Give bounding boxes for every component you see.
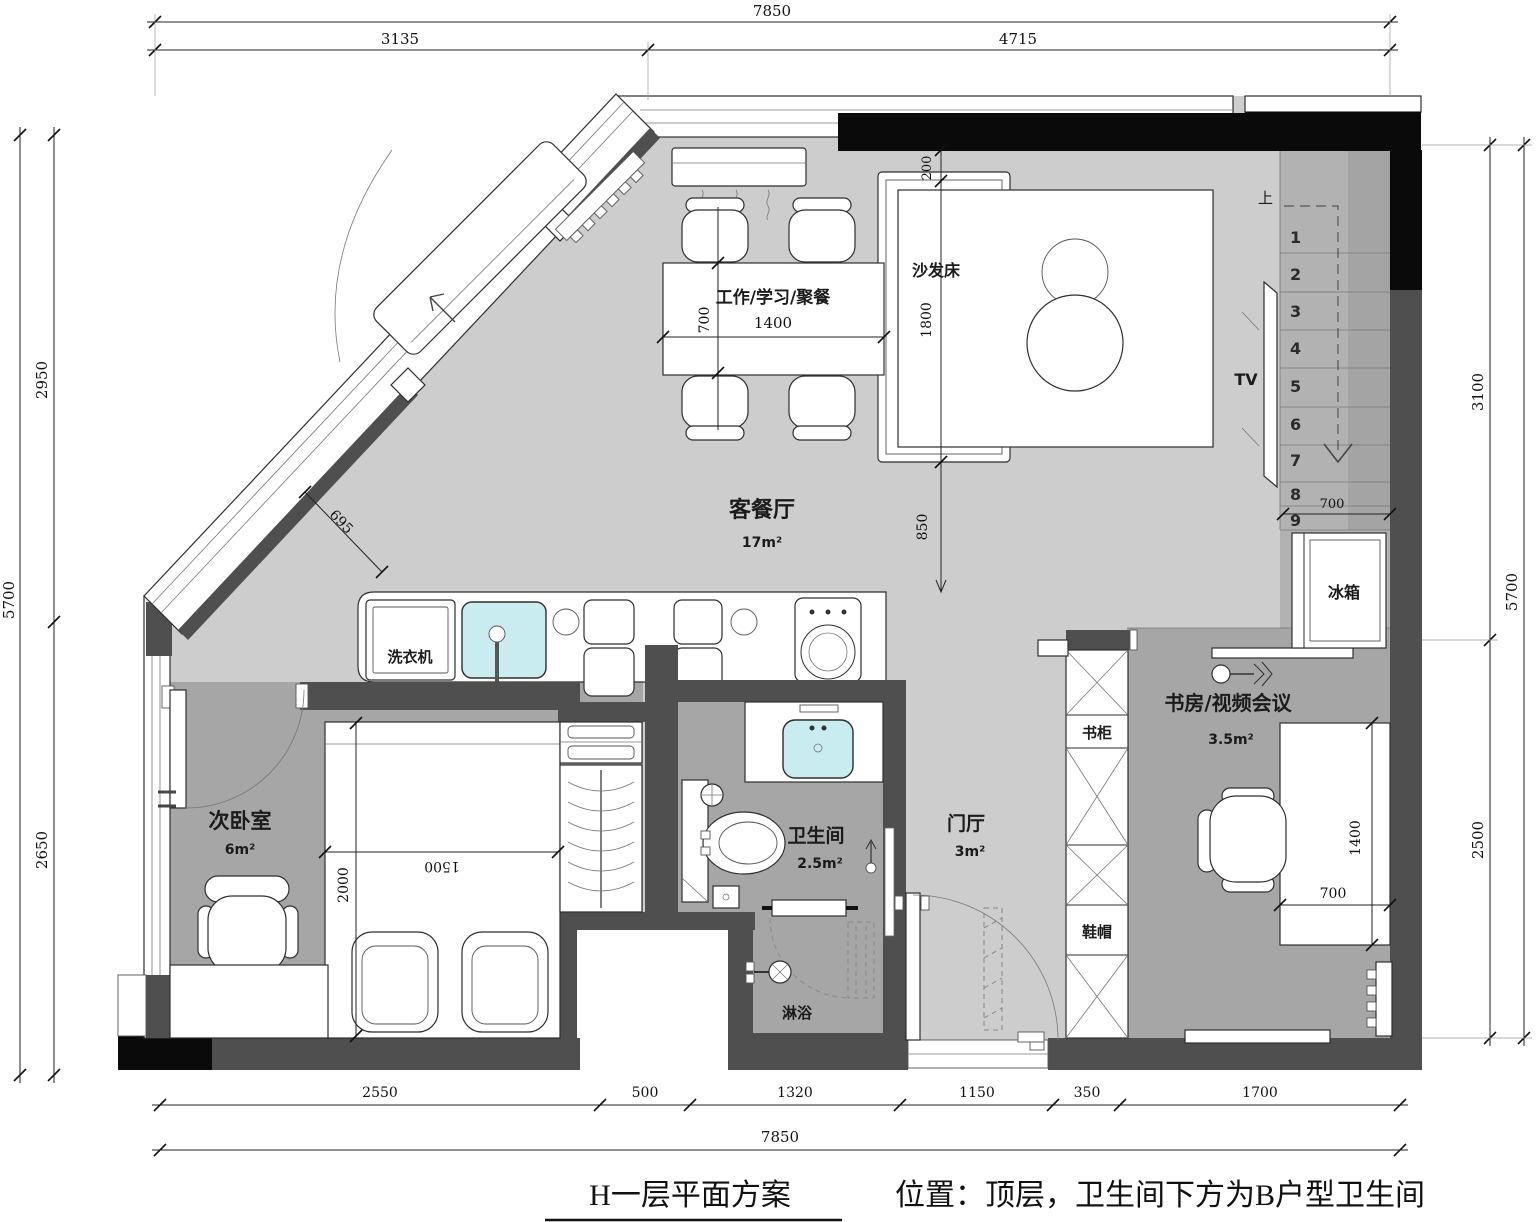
- table-length-dim: 1400: [754, 314, 792, 332]
- desk-length-dim: 1400: [1348, 820, 1364, 856]
- floor-strip: [1185, 1030, 1330, 1043]
- right-wall-black: [1390, 150, 1422, 290]
- bedroom-desk: [170, 965, 328, 1038]
- washer-label: 洗衣机: [387, 648, 432, 666]
- center-wall: [645, 645, 678, 912]
- dim-bottom-overall: 7850: [761, 1128, 799, 1146]
- dim-left-top: 2950: [33, 361, 51, 399]
- hall-label: 门厅: [947, 812, 985, 835]
- living-label: 客餐厅: [729, 497, 795, 523]
- dim-left-bottom: 2650: [33, 831, 51, 869]
- step-4: 4: [1290, 339, 1301, 358]
- hall-area: 3m²: [955, 844, 985, 860]
- dim-bottom-5: 1700: [1242, 1085, 1278, 1101]
- dim-top-overall: 7850: [753, 2, 791, 20]
- fridge: 冰箱: [1292, 533, 1386, 648]
- titles: H一层平面方案 位置：顶层，卫生间下方为B户型卫生间: [545, 1179, 1425, 1220]
- dim-right-bottom: 2500: [1469, 821, 1487, 859]
- step-6: 6: [1290, 415, 1301, 434]
- step-1: 1: [1290, 228, 1301, 247]
- step-7: 7: [1290, 451, 1301, 470]
- sofa-length-dim: 1800: [919, 302, 935, 338]
- bedroom-chair: [198, 876, 298, 972]
- study-area: 3.5m²: [1208, 732, 1254, 748]
- dim-right-top: 3100: [1469, 373, 1487, 411]
- floor-plan-sheet: 洗衣机: [0, 0, 1536, 1222]
- fridge-label: 冰箱: [1328, 583, 1360, 602]
- living-area: 17m²: [742, 535, 782, 551]
- bathroom-basin: [783, 720, 853, 778]
- bookcase-label: 书柜: [1082, 724, 1112, 742]
- bedroom-area: 6m²: [225, 842, 255, 858]
- dim-bottom-1: 500: [632, 1085, 659, 1101]
- work-table-label: 工作/学习/聚餐: [716, 287, 831, 308]
- right-wall: [1390, 290, 1422, 1070]
- table-depth-dim: 700: [697, 307, 713, 334]
- kitchen-sink: [462, 602, 546, 678]
- dim-top-left: 3135: [381, 30, 419, 48]
- dim-bottom-2: 1320: [777, 1085, 813, 1101]
- stair-width-dim: 700: [1320, 497, 1345, 512]
- bathroom-area: 2.5m²: [797, 856, 843, 872]
- dim-bottom-0: 2550: [362, 1085, 398, 1101]
- tv-label: TV: [1234, 370, 1258, 389]
- floor-plan-drawing: 洗衣机: [0, 0, 1536, 1222]
- study-label: 书房/视频会议: [1164, 691, 1292, 715]
- step-2: 2: [1290, 265, 1301, 284]
- step-5: 5: [1290, 377, 1301, 396]
- dim-top-right: 4715: [999, 30, 1037, 48]
- location-note: 位置：顶层，卫生间下方为B户型卫生间: [895, 1179, 1425, 1212]
- wardrobe: [560, 722, 642, 912]
- shower-label: 淋浴: [782, 1004, 813, 1022]
- left-window: [144, 596, 170, 1038]
- dim-bottom-3: 1150: [959, 1085, 995, 1101]
- dim-right-overall: 5700: [1503, 573, 1521, 611]
- stairs-up-label: 上: [1258, 189, 1273, 207]
- sofa-bed-label: 沙发床: [912, 261, 961, 280]
- cabinet-column: 书柜 鞋帽: [1066, 650, 1128, 1038]
- sofa-offset-dim: 200: [920, 156, 935, 181]
- bathroom-faucet: [701, 784, 723, 806]
- plan-title: H一层平面方案: [589, 1179, 791, 1212]
- bed-width-dim: 1500: [424, 858, 460, 874]
- study-desk: [1280, 723, 1390, 945]
- wall-screen: [1212, 648, 1353, 658]
- bathroom-label: 卫生间: [787, 824, 844, 847]
- desk-depth-dim: 700: [1320, 886, 1347, 902]
- bed-length-dim: 2000: [336, 867, 352, 903]
- shoe-cabinet-label: 鞋帽: [1082, 923, 1112, 941]
- bedroom-label: 次卧室: [209, 809, 272, 833]
- stove: [795, 598, 861, 682]
- dim-bottom-4: 350: [1074, 1085, 1101, 1101]
- living-gap-dim: 850: [915, 514, 931, 541]
- study-door-leaf: [1038, 640, 1068, 656]
- dim-left-overall: 5700: [0, 581, 18, 619]
- step-8: 8: [1290, 485, 1301, 504]
- step-3: 3: [1290, 302, 1301, 321]
